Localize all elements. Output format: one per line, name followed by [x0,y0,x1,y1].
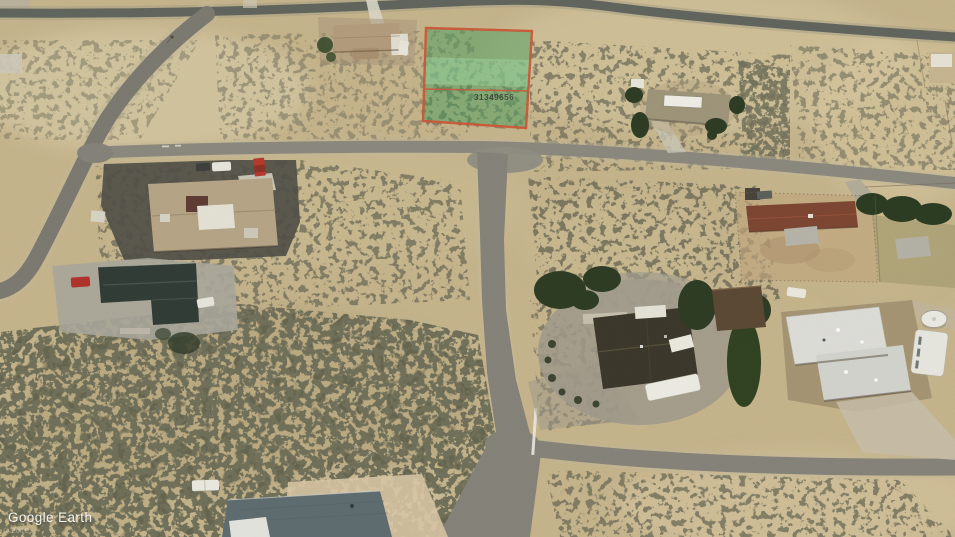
copyright-text: © 2018 [3,526,29,535]
map-canvas[interactable]: 31349656 [0,0,955,537]
sand-grain-texture [0,0,955,537]
google-earth-viewport[interactable]: 31349656 Google Earth © 2018 [0,0,955,537]
google-earth-logo: Google Earth [8,510,92,525]
